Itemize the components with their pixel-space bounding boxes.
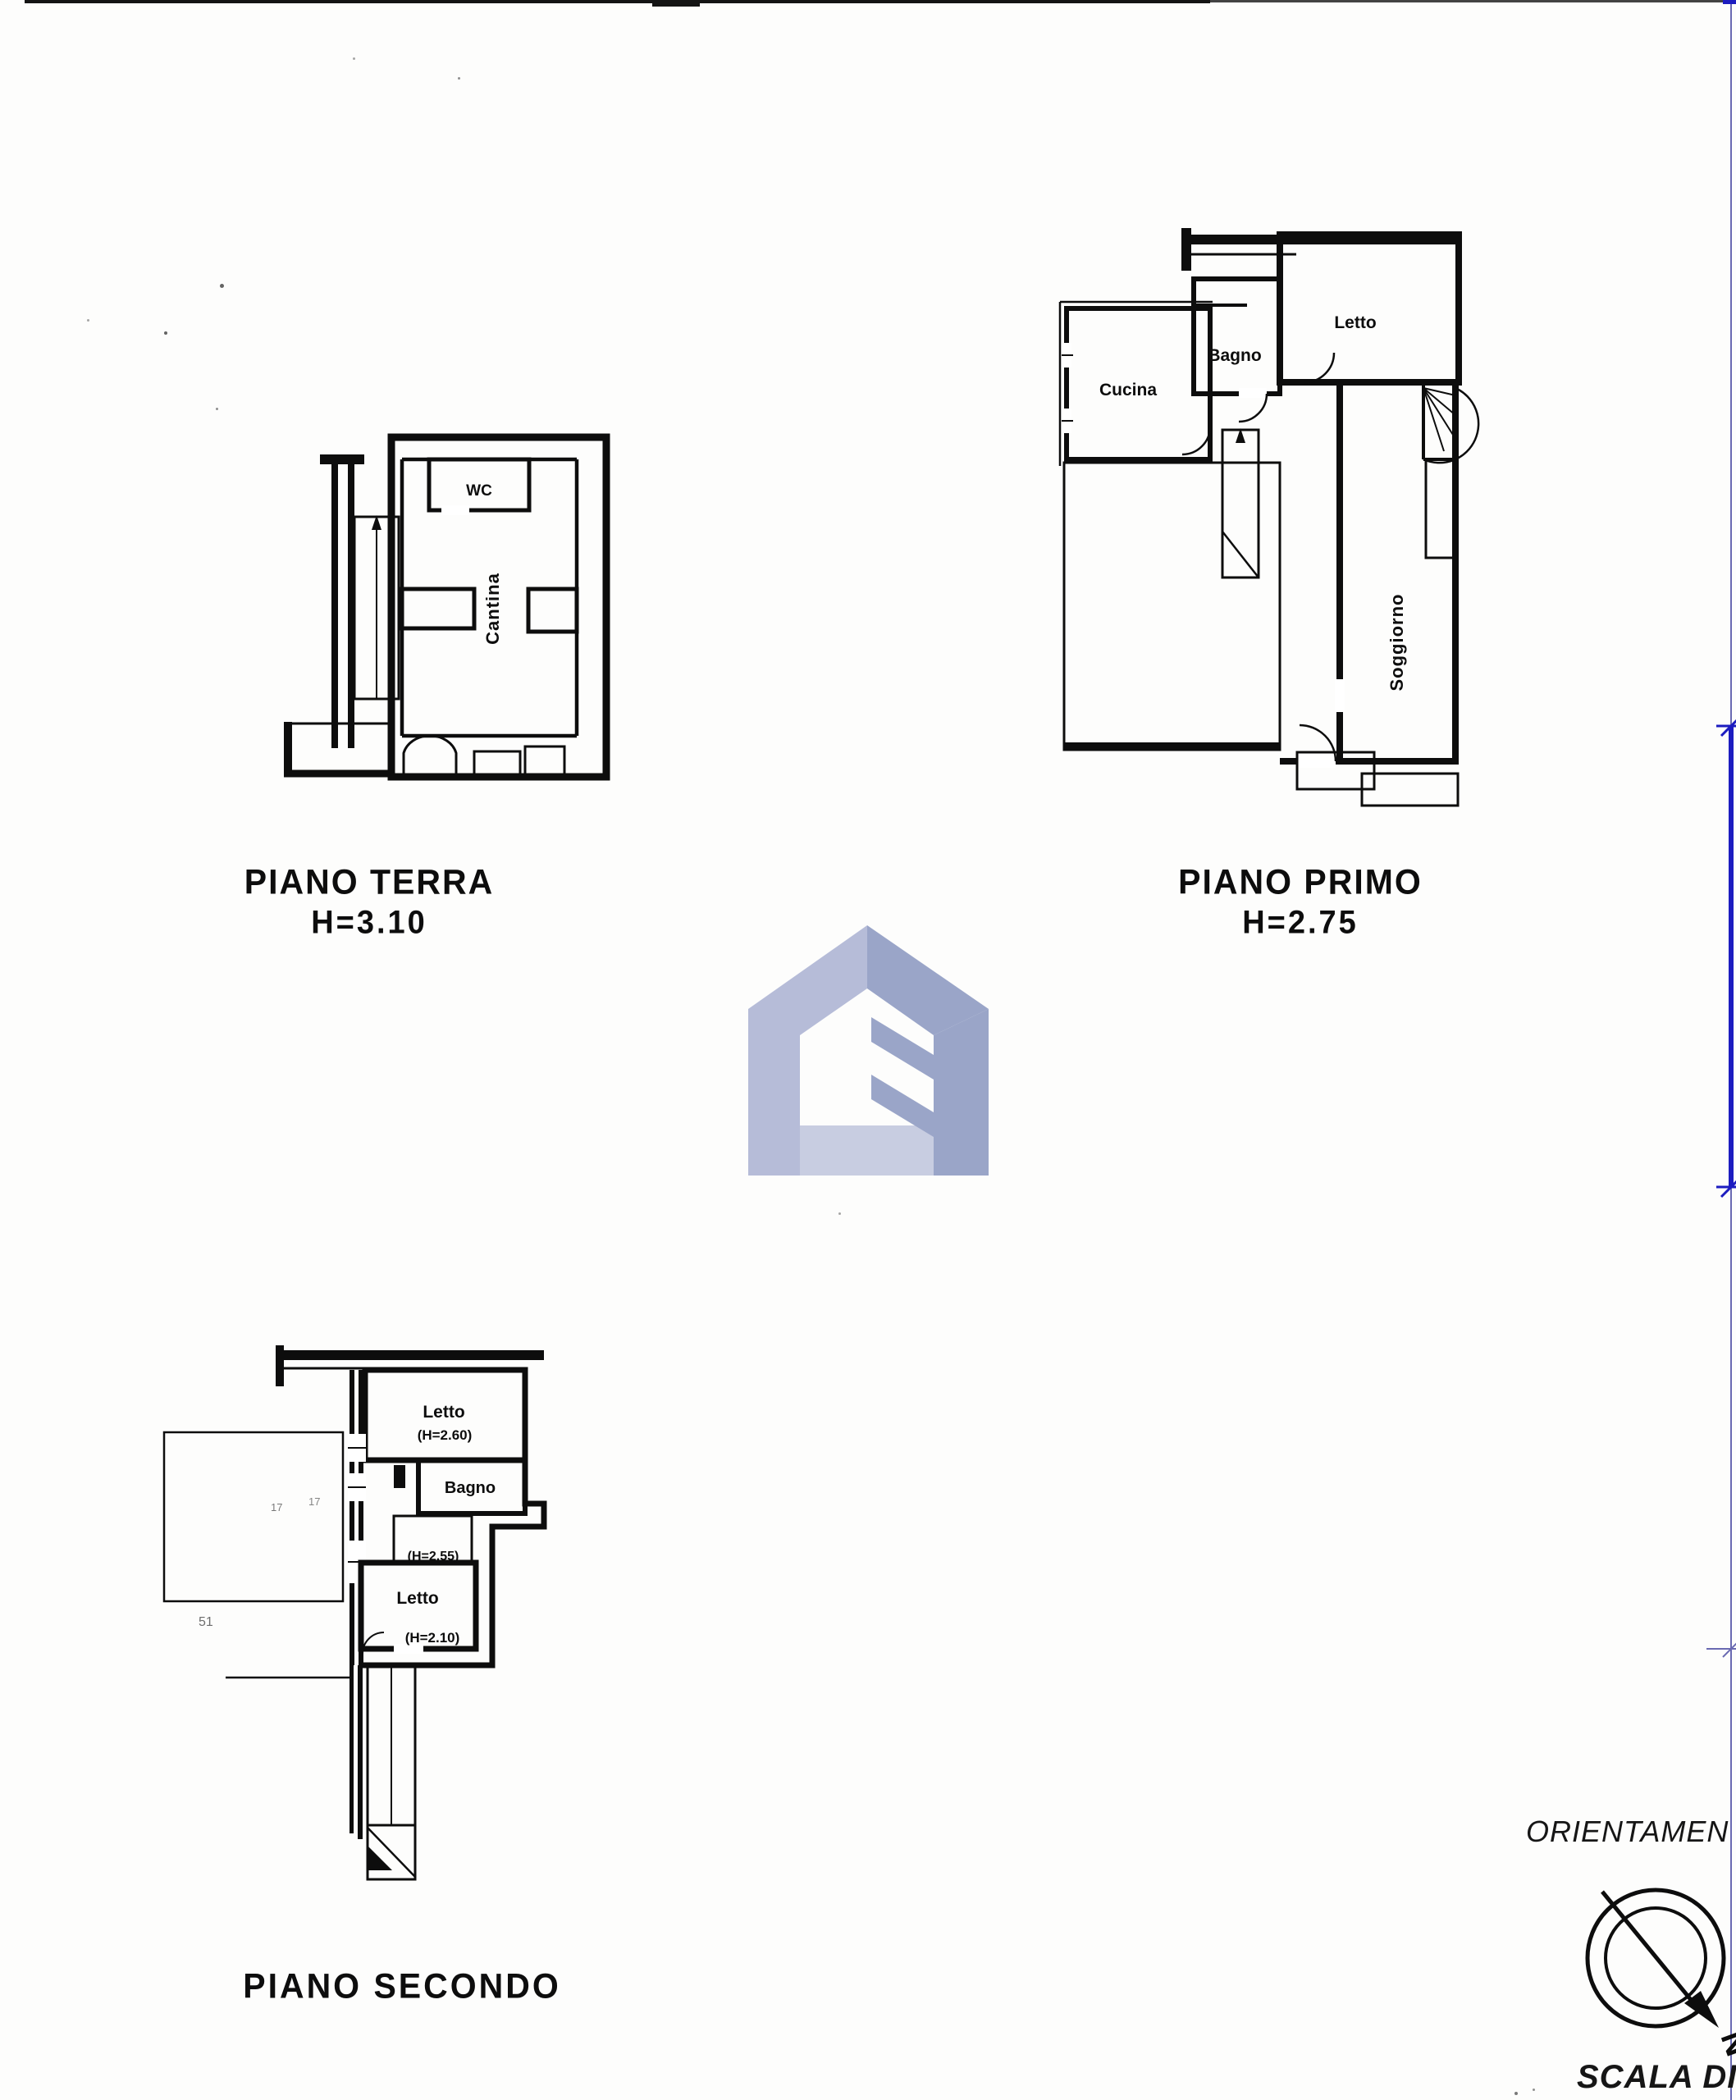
primo-door-arcs <box>1182 353 1345 761</box>
room-label-bagno-primo: Bagno <box>1208 346 1261 365</box>
orientation-label: ORIENTAMEN <box>1526 1815 1729 1849</box>
annotation-mark: 17 <box>271 1501 282 1513</box>
floor-plan-piano-terra: WC Cantina <box>279 427 665 812</box>
compass-north-label: N <box>1714 2026 1736 2061</box>
primo-winder-stair <box>1423 382 1478 558</box>
compass: N <box>1579 1880 1736 2057</box>
scanned-floorplan-page: WC Cantina PIANO TERRA H=3.10 <box>0 0 1736 2100</box>
scan-speck <box>1514 2092 1518 2095</box>
floor-plan-piano-primo: Letto Bagno Cucina Soggiorno <box>1050 220 1477 827</box>
room-label-soggiorno: Soggiorno <box>1387 594 1407 692</box>
terra-walls <box>284 437 606 777</box>
annotation-mark: 51 <box>199 1615 213 1629</box>
scan-speck <box>164 331 167 335</box>
primo-straight-stair <box>1222 428 1259 577</box>
primo-bagno-room <box>1194 279 1280 398</box>
room-label-bagno-secondo: Bagno <box>445 1479 496 1497</box>
scan-speck <box>87 319 89 322</box>
caption-piano-primo: PIANO PRIMO <box>1136 862 1464 902</box>
room-label-letto-basso: Letto <box>396 1589 438 1608</box>
top-edge-line-right <box>1210 0 1731 2</box>
caption-piano-terra: PIANO TERRA <box>205 862 533 902</box>
terra-bottom-recesses <box>404 736 564 774</box>
room-label-letto-alto-h: (H=2.60) <box>418 1427 473 1443</box>
secondo-terrace <box>164 1432 353 1678</box>
watermark-wall-right <box>934 1009 989 1176</box>
right-reference-line <box>1698 0 1736 2100</box>
floor-plan-piano-secondo: Letto (H=2.60) Bagno (H=2.55) Letto (H=2… <box>148 1335 574 1910</box>
room-label-letto-basso-h: (H=2.10) <box>405 1630 460 1646</box>
room-label-cantina: Cantina <box>482 573 503 645</box>
room-label-wc: WC <box>466 482 492 500</box>
scan-speck <box>458 77 460 80</box>
room-label-letto-alto: Letto <box>423 1403 464 1422</box>
primo-terrace <box>1064 463 1280 750</box>
room-label-cucina: Cucina <box>1099 381 1157 399</box>
scale-note: SCALA DI 1: <box>1577 2059 1736 2096</box>
room-label-letto-primo: Letto <box>1334 313 1376 332</box>
secondo-bottom-stair <box>349 1632 415 1879</box>
watermark-house-logo <box>742 919 1005 1185</box>
caption-piano-secondo: PIANO SECONDO <box>230 1966 574 2006</box>
room-label-vano-h: (H=2.55) <box>408 1550 459 1564</box>
watermark-floor-band <box>800 1125 934 1176</box>
caption-piano-terra-height: H=3.10 <box>205 905 533 942</box>
scan-speck <box>216 408 218 410</box>
top-edge-line <box>25 0 1210 3</box>
annotation-mark: 17 <box>308 1495 320 1508</box>
top-edge-blot <box>652 0 700 7</box>
scan-speck <box>1533 2089 1535 2091</box>
caption-piano-primo-height: H=2.75 <box>1136 905 1464 942</box>
scan-speck <box>220 284 224 288</box>
scan-speck <box>838 1212 841 1215</box>
scan-speck <box>353 57 355 60</box>
